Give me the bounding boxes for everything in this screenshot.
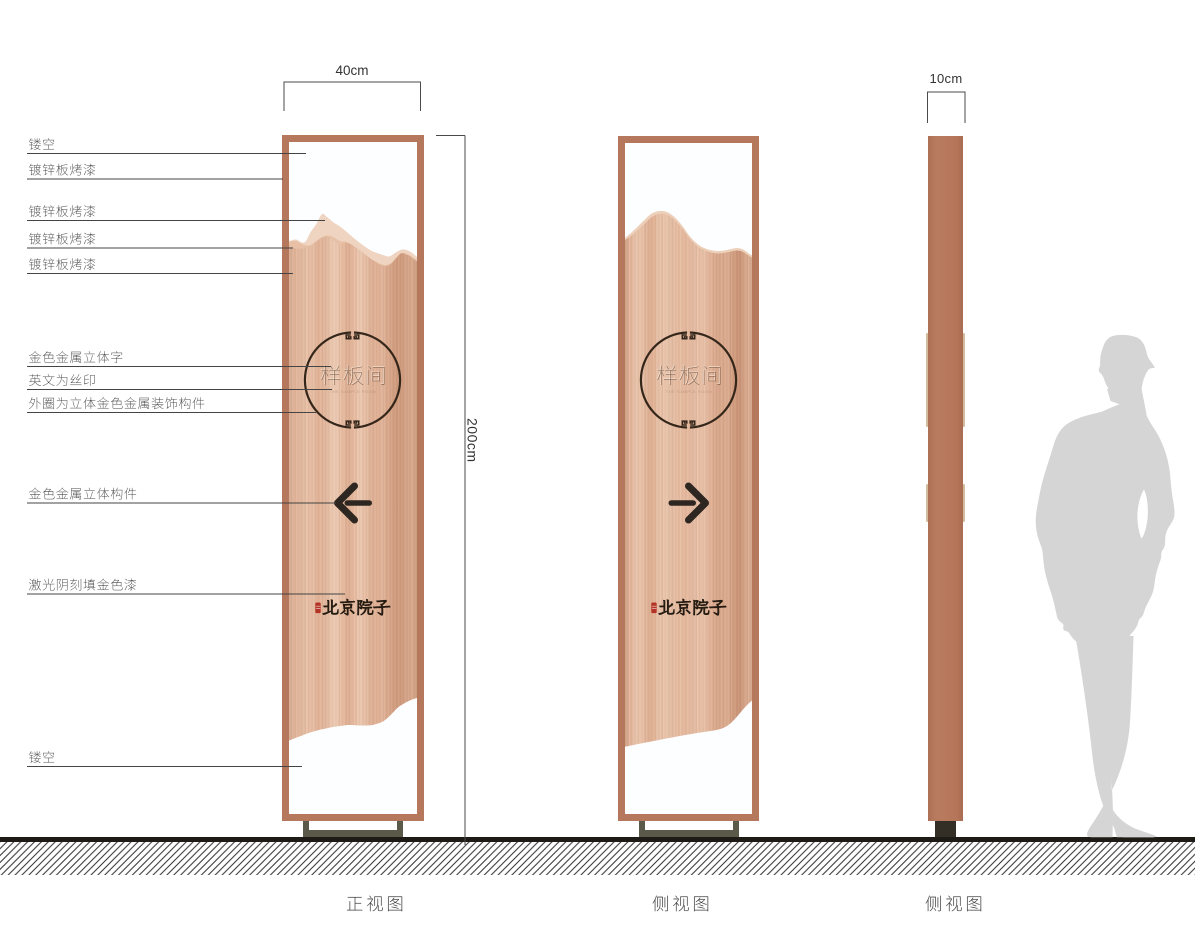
svg-text:200cm: 200cm [465, 418, 481, 463]
svg-text:10cm: 10cm [930, 71, 963, 86]
svg-text:THE SAMPLE ROOM: THE SAMPLE ROOM [666, 389, 712, 394]
svg-text:THE SAMPLE ROOM: THE SAMPLE ROOM [330, 389, 376, 394]
svg-text:40cm: 40cm [335, 63, 368, 78]
